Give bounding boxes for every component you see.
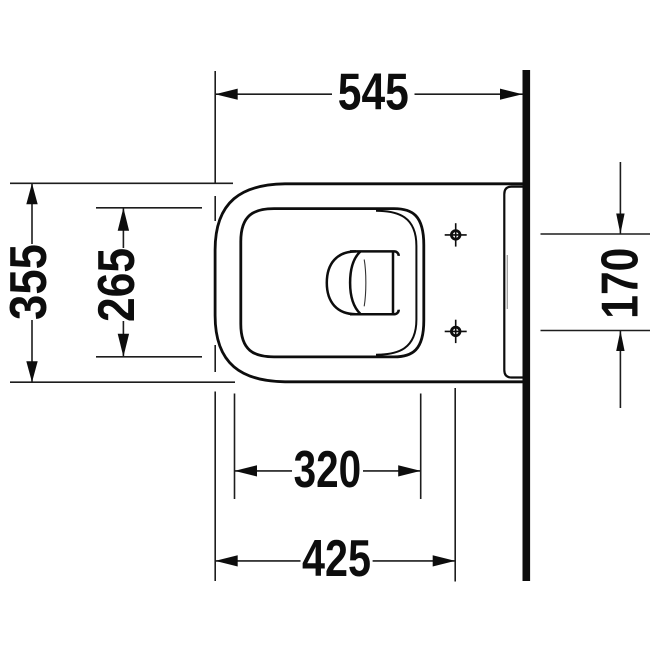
svg-text:170: 170 (591, 248, 649, 319)
svg-text:265: 265 (87, 248, 145, 322)
svg-text:425: 425 (302, 529, 371, 587)
svg-text:355: 355 (0, 244, 57, 320)
svg-text:545: 545 (338, 63, 409, 121)
svg-text:320: 320 (294, 440, 362, 498)
